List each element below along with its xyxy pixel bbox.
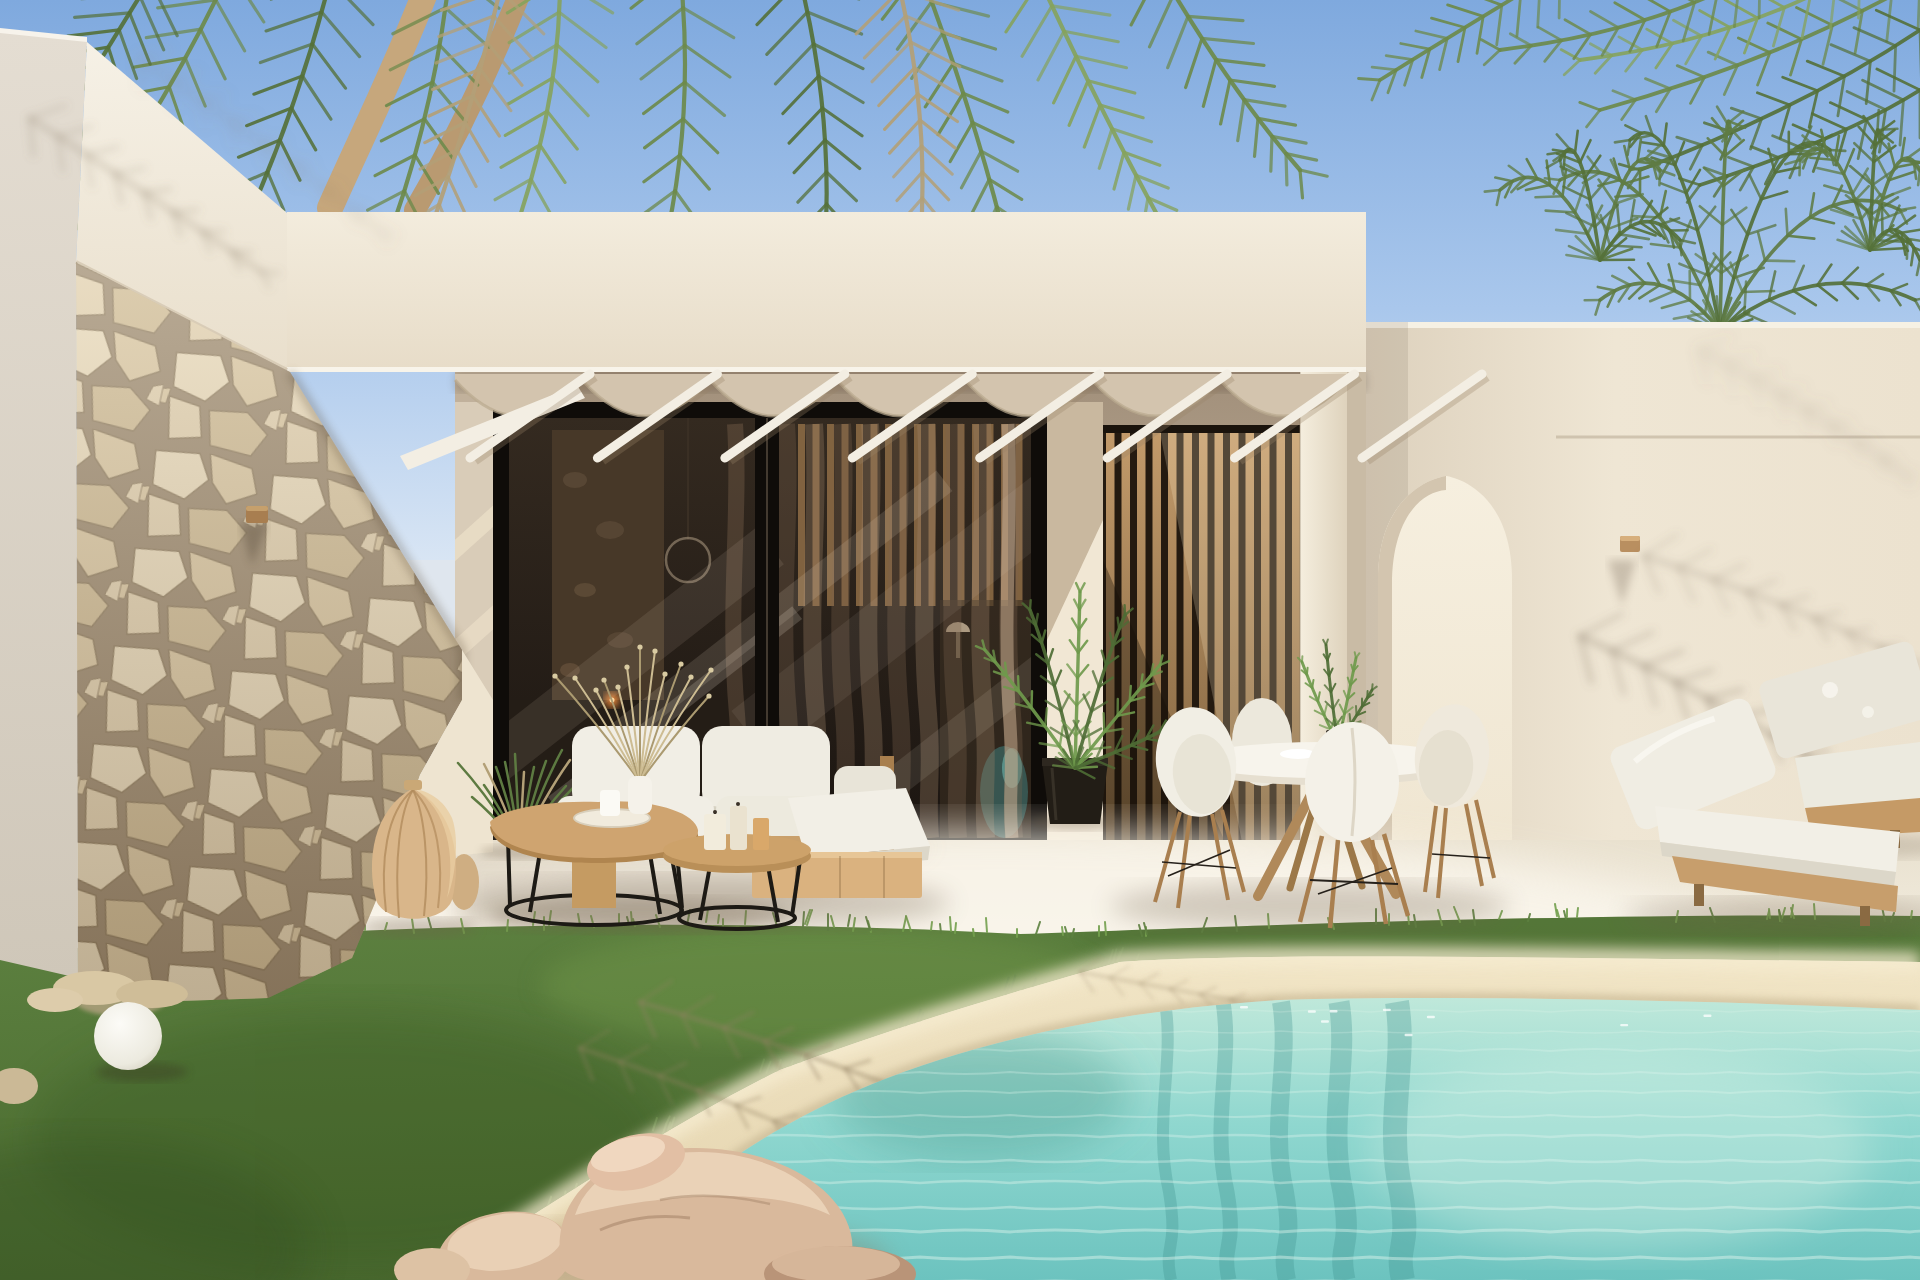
right-wing-parapet-edge <box>1366 322 1920 328</box>
fascia-lip <box>287 367 1366 372</box>
scene-canvas <box>0 0 1920 1280</box>
cup <box>600 790 620 816</box>
candle-holder <box>753 818 769 850</box>
candle <box>730 806 747 850</box>
sphere-floor-lamp <box>94 1002 162 1070</box>
fascia-band <box>287 212 1366 372</box>
vase <box>628 776 652 814</box>
wall-side-face <box>0 33 87 978</box>
villa-pool-render <box>0 0 1920 1280</box>
candle <box>704 814 726 850</box>
